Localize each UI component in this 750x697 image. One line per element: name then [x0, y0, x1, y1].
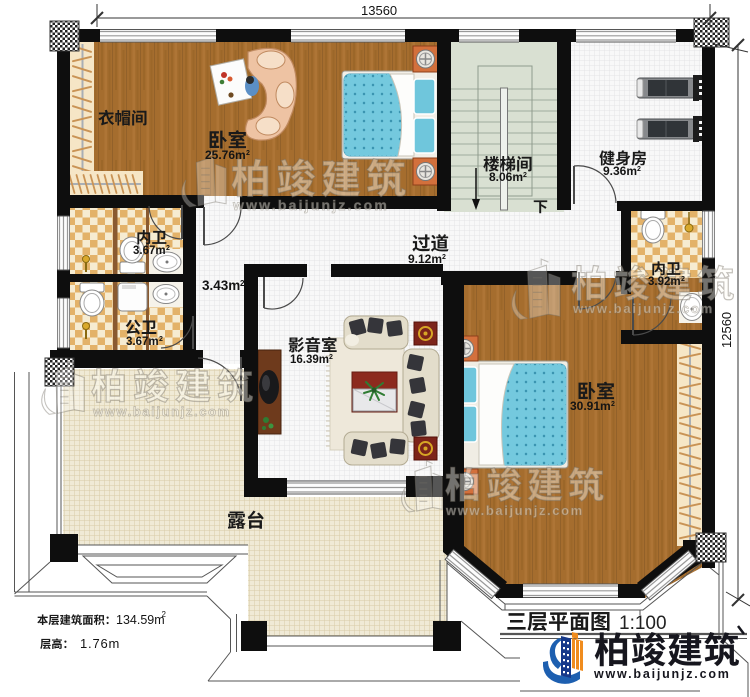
- svg-text:2: 2: [442, 254, 446, 261]
- svg-text:25.76m: 25.76m: [205, 148, 246, 162]
- svg-text:2: 2: [166, 245, 170, 252]
- svg-text:2: 2: [523, 172, 527, 179]
- svg-text:2: 2: [637, 166, 641, 173]
- svg-text:1.76m: 1.76m: [80, 636, 120, 651]
- svg-text:13560: 13560: [361, 3, 397, 18]
- svg-text:3.92m: 3.92m: [648, 276, 681, 288]
- svg-text:3.67m: 3.67m: [126, 336, 159, 348]
- svg-text:2: 2: [611, 401, 615, 408]
- svg-text:2: 2: [246, 150, 250, 157]
- svg-text:16.39m: 16.39m: [290, 354, 329, 366]
- svg-text:30.91m: 30.91m: [570, 399, 611, 413]
- svg-text:www.baijunjz.com: www.baijunjz.com: [593, 667, 731, 681]
- svg-text:3.43m: 3.43m: [202, 278, 240, 293]
- svg-text:2: 2: [159, 336, 163, 343]
- svg-text:8.06m: 8.06m: [489, 170, 523, 184]
- svg-text:www.baijunjz.com: www.baijunjz.com: [92, 404, 231, 419]
- svg-text:2: 2: [240, 279, 245, 288]
- svg-text:2: 2: [329, 354, 333, 361]
- svg-text:134.59m: 134.59m: [116, 613, 165, 627]
- svg-text:3.67m: 3.67m: [133, 245, 166, 257]
- svg-text:www.baijunjz.com: www.baijunjz.com: [232, 197, 389, 213]
- svg-text:www.baijunjz.com: www.baijunjz.com: [572, 301, 714, 316]
- svg-text:9.12m: 9.12m: [408, 252, 442, 266]
- svg-text:www.baijunjz.com: www.baijunjz.com: [445, 503, 584, 518]
- svg-text:9.36m: 9.36m: [603, 164, 637, 178]
- svg-text:2: 2: [681, 276, 685, 283]
- svg-text:1:100: 1:100: [619, 613, 667, 634]
- svg-text:12560: 12560: [719, 312, 734, 348]
- svg-text:2: 2: [162, 610, 167, 619]
